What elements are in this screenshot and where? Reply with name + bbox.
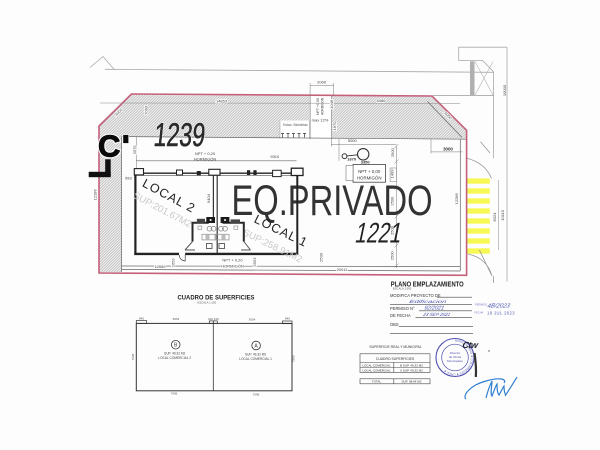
svg-text:7096: 7096: [171, 392, 178, 396]
svg-text:ESCALA 1:100: ESCALA 1:100: [198, 301, 217, 305]
svg-text:2000: 2000: [317, 80, 327, 85]
svg-text:993: 993: [125, 176, 132, 181]
svg-text:20011: 20011: [337, 267, 349, 272]
svg-text:1221: 1221: [353, 218, 406, 250]
svg-text:OBS: OBS: [390, 322, 399, 327]
svg-text:SUP. 49,32 M2: SUP. 49,32 M2: [245, 353, 266, 357]
svg-text:Estac. Bicicletas: Estac. Bicicletas: [283, 123, 308, 127]
svg-text:2500: 2500: [389, 251, 394, 261]
svg-text:HORMIGÓN: HORMIGÓN: [221, 264, 244, 269]
svg-text:SUPERFICIE REAL Y MUNICIPAL: SUPERFICIE REAL Y MUNICIPAL: [369, 345, 421, 349]
svg-text:10115: 10115: [500, 209, 505, 221]
svg-text:8486: 8486: [377, 98, 387, 103]
svg-text:Municipales: Municipales: [447, 359, 463, 363]
svg-text:1670: 1670: [332, 121, 337, 131]
svg-text:LOCAL COMERCIAL 1: LOCAL COMERCIAL 1: [239, 357, 272, 361]
svg-text:14853: 14853: [216, 99, 228, 104]
svg-text:9404: 9404: [206, 193, 211, 203]
svg-text:7096: 7096: [253, 392, 260, 396]
svg-text:A SUP. 49,32 M2: A SUP. 49,32 M2: [400, 368, 423, 372]
svg-text:840: 840: [139, 316, 144, 320]
svg-text:SUP. 49,32 M2: SUP. 49,32 M2: [164, 352, 185, 356]
svg-text:10000: 10000: [502, 84, 507, 96]
svg-text:*: *: [488, 350, 490, 356]
svg-text:SUP. 98,64 M2: SUP. 98,64 M2: [402, 380, 422, 384]
svg-text:FECHA: FECHA: [475, 311, 484, 315]
svg-text:DE FECHA: DE FECHA: [390, 313, 411, 318]
svg-text:310 310: 310 310: [208, 317, 219, 321]
svg-text:2500: 2500: [318, 252, 323, 262]
svg-text:12286: 12286: [454, 192, 459, 204]
svg-text:23 SEP 2021: 23 SEP 2021: [422, 312, 451, 317]
svg-text:1239: 1239: [152, 117, 207, 154]
svg-text:Edificacion: Edificacion: [409, 299, 448, 304]
svg-text:NPT + 0,20: NPT + 0,20: [222, 258, 243, 263]
svg-text:Ctw: Ctw: [462, 340, 480, 350]
svg-text:ESCALA 1:200: ESCALA 1:200: [393, 286, 412, 290]
svg-text:TOTAL: TOTAL: [372, 380, 382, 384]
svg-text:3350: 3350: [361, 159, 371, 164]
svg-text:12286: 12286: [93, 188, 98, 200]
svg-text:NPT + 0,20: NPT + 0,20: [195, 151, 216, 156]
svg-text:5553: 5553: [252, 257, 257, 267]
svg-text:C: C: [98, 129, 120, 164]
svg-text:2093: 2093: [143, 105, 148, 115]
svg-text:1653: 1653: [171, 258, 176, 268]
svg-text:LOCAL COMERCIAL 2: LOCAL COMERCIAL 2: [158, 356, 191, 360]
svg-text:HORMIGON: HORMIGON: [320, 98, 325, 115]
svg-text:CUADRO DE SUPERFICIES: CUADRO DE SUPERFICIES: [178, 295, 256, 302]
svg-text:LOCAL COMERCIAL: LOCAL COMERCIAL: [362, 363, 391, 367]
svg-text:max 12%: max 12%: [312, 118, 329, 123]
svg-text:CUADRO SUPERFICIES: CUADRO SUPERFICIES: [376, 357, 415, 361]
svg-text:2575: 2575: [132, 145, 137, 155]
svg-text:PERMISO N°: PERMISO N°: [390, 306, 415, 311]
svg-text:19 JUL 2023: 19 JUL 2023: [487, 311, 515, 316]
svg-text:3000: 3000: [443, 147, 453, 152]
svg-text:1499: 1499: [389, 169, 394, 179]
svg-text:2500: 2500: [390, 147, 395, 157]
svg-text:5000: 5000: [348, 138, 358, 143]
svg-text:1670: 1670: [347, 156, 357, 161]
svg-text:7098: 7098: [131, 353, 135, 360]
svg-text:NPT + 0,00: NPT + 0,00: [358, 169, 381, 174]
svg-text:8324: 8324: [492, 212, 497, 222]
svg-text:LOCAL COMERCIAL: LOCAL COMERCIAL: [362, 368, 391, 372]
svg-text:4B/2023: 4B/2023: [486, 303, 511, 310]
svg-text:10089: 10089: [154, 264, 166, 269]
svg-text:MODIFICA PROYECTO DE: MODIFICA PROYECTO DE: [390, 293, 441, 298]
svg-text:7206: 7206: [292, 355, 296, 362]
svg-text:9310: 9310: [270, 154, 280, 159]
svg-text:3634: 3634: [249, 318, 256, 322]
svg-text:840: 840: [285, 317, 290, 321]
svg-text:HORMIGÓN: HORMIGÓN: [194, 157, 217, 162]
svg-text:1046: 1046: [329, 99, 334, 109]
svg-text:B SUP. 49,32 M2: B SUP. 49,32 M2: [400, 363, 423, 367]
svg-text:5654: 5654: [173, 317, 180, 321]
svg-text:PERMISO: PERMISO: [475, 303, 487, 307]
